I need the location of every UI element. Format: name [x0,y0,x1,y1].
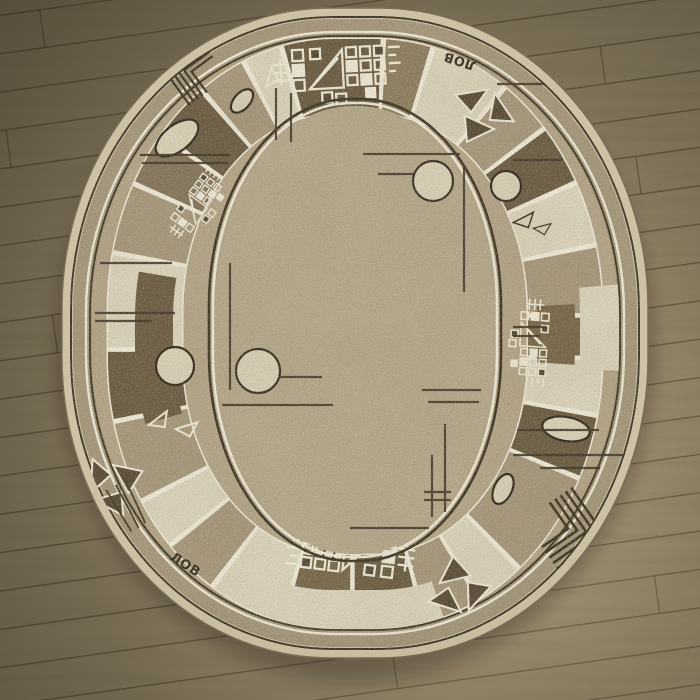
rug-on-floor-photo: ЛОВ ЛОВ [0,0,700,700]
scene-photo: ЛОВ ЛОВ [0,0,700,700]
photo-vignette [0,0,700,700]
